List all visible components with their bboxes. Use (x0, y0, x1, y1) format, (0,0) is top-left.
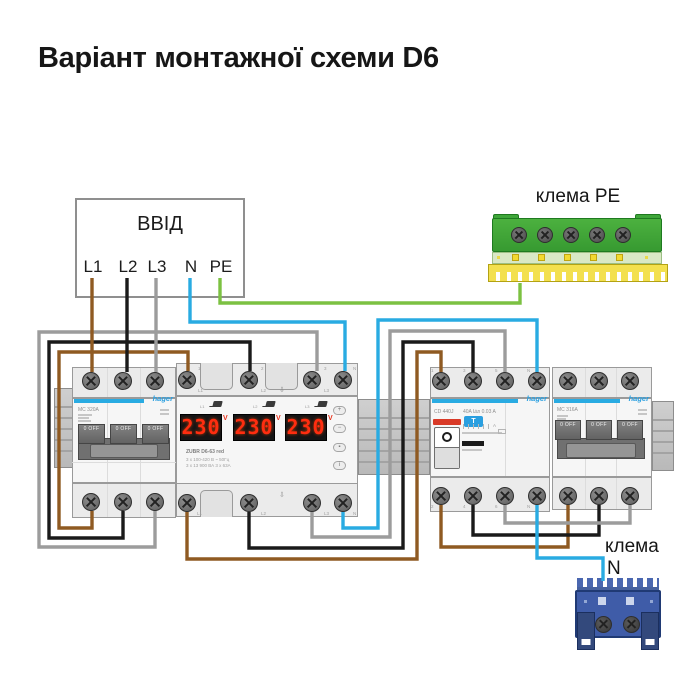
marking (462, 432, 502, 434)
screw-terminal (590, 372, 608, 390)
screw-terminal (623, 616, 640, 633)
terminal-phase: L2 (261, 388, 266, 393)
marking (473, 424, 474, 429)
pole-seam (616, 368, 617, 397)
screw-terminal (589, 227, 605, 243)
marking (468, 424, 469, 429)
relay-contact-icon (265, 401, 275, 407)
n-contact-dot (650, 600, 653, 603)
marking (488, 424, 489, 429)
pole-seam (585, 368, 586, 397)
terminal-phase: L1 (197, 511, 202, 516)
terminal-number: N (353, 366, 356, 371)
screw-terminal (303, 494, 321, 512)
marking (638, 413, 647, 415)
screw-terminal (303, 371, 321, 389)
screw-terminal (559, 372, 577, 390)
status-indicator (433, 419, 461, 425)
screw-terminal (178, 494, 196, 512)
switch-indicator-icon (442, 432, 452, 442)
screw-terminal (615, 227, 631, 243)
screw-terminal (146, 493, 164, 511)
rating-label: 40A I∆n 0.03 A (463, 409, 496, 415)
pole-seam (107, 368, 108, 397)
screw-terminal (240, 494, 258, 512)
terminal-phase: L1 (198, 388, 203, 393)
pole-seam (140, 368, 141, 397)
terminal-clip (200, 490, 233, 517)
pe-contact (512, 254, 519, 261)
screw-terminal (621, 487, 639, 505)
pe-contact (538, 254, 545, 261)
marking (638, 409, 647, 411)
screw-terminal (432, 372, 450, 390)
screw-terminal (528, 372, 546, 390)
terminal-number: 1 (198, 366, 201, 371)
voltage-relay-zubr: 1 2 3 N L1 L2 L3 ⇩ L1 L2 L3 230 V 230 V … (176, 363, 358, 517)
voltage-display-l3: 230 (285, 414, 327, 441)
voltage-unit: V (328, 415, 333, 422)
wiring-diagram-scene: Варіант монтажної схеми D6 ВВІД L1 L2 L3… (0, 0, 700, 700)
info-button: i (333, 461, 346, 470)
screw-terminal (432, 487, 450, 505)
marking (463, 424, 464, 429)
terminal-phase: L3 (324, 511, 329, 516)
marking (478, 424, 479, 429)
plus-button: + (333, 406, 346, 415)
pe-comb (488, 264, 668, 282)
terminal-number: 2 (261, 366, 264, 371)
terminal-label-pe: PE (210, 257, 233, 277)
terminal-number: N (527, 504, 530, 509)
screw-terminal (563, 227, 579, 243)
pole-seam (505, 399, 506, 476)
screw-terminal (240, 371, 258, 389)
n-terminal-label: клема (605, 536, 659, 558)
n-terminal-block (573, 576, 665, 654)
switch-handle (435, 447, 459, 468)
marking (483, 424, 484, 429)
terminal-clip (200, 363, 233, 390)
wire-n-rcd-to-terminal (537, 505, 603, 581)
spec-line: 3 x 100-420 В ~ 50Гц (186, 457, 229, 462)
n-mount-foot (641, 612, 659, 650)
terminal-number: 2 (431, 504, 434, 509)
breaker-toggle: 0 OFF (78, 424, 105, 444)
phase-label: L2 (253, 404, 257, 409)
screw-terminal (178, 371, 196, 389)
screw-terminal (595, 616, 612, 633)
terminal-phase: N (353, 511, 356, 516)
marking: A (493, 423, 496, 428)
pole-seam (140, 484, 141, 517)
terminal-number: 4 (463, 504, 466, 509)
marking (462, 441, 484, 446)
n-contact-dot (584, 600, 587, 603)
input-box-title: ВВІД (77, 213, 243, 236)
marking (78, 420, 91, 422)
terminal-number: N (527, 368, 530, 373)
din-rail-middle (358, 399, 430, 475)
screw-terminal (82, 493, 100, 511)
breaker-toggle: 0 OFF (110, 424, 137, 444)
voltage-unit: V (223, 415, 228, 422)
marking (78, 414, 92, 416)
minus-button: − (333, 424, 346, 433)
screw-terminal (334, 494, 352, 512)
down-arrow-icon: ⇩ (279, 386, 285, 394)
model-label: MC 316A (557, 407, 578, 413)
marking (462, 449, 482, 451)
face-seam (72, 462, 176, 463)
brand-logo: hager (527, 394, 547, 403)
menu-button: ▪ (333, 443, 346, 452)
terminal-label-n: N (185, 257, 197, 277)
down-arrow-icon: ⇩ (279, 491, 285, 499)
voltage-unit: V (276, 415, 281, 422)
breaker-toggle: 0 OFF (142, 424, 169, 444)
screw-terminal (334, 371, 352, 389)
phase-label: L1 (200, 404, 204, 409)
relay-contact-icon (212, 401, 222, 407)
voltage-display-l2: 230 (233, 414, 275, 441)
marking (160, 409, 169, 411)
n-contact (626, 597, 634, 605)
screw-terminal (82, 372, 100, 390)
model-label: ZUBR D6-63 red (186, 449, 224, 455)
input-box: ВВІД L1 L2 L3 N PE (75, 198, 245, 298)
breaker-toggle: 0 OFF (555, 420, 581, 440)
screw-terminal (537, 227, 553, 243)
n-contact (598, 597, 606, 605)
screw-terminal (496, 487, 514, 505)
screw-terminal (621, 372, 639, 390)
din-rail-right (652, 401, 674, 471)
screw-terminal (114, 493, 132, 511)
brand-stripe (432, 399, 518, 403)
terminal-number: 5 (495, 368, 498, 373)
terminal-label-l1: L1 (84, 257, 103, 277)
screw-terminal (496, 372, 514, 390)
wire-pe-input-to-terminal (220, 278, 520, 303)
pole-seam (585, 478, 586, 509)
breaker-left: hager MC 320A 0 OFF 0 OFF 0 OFF (72, 367, 176, 518)
relay-contact-icon (317, 401, 327, 407)
breaker-toggle: 0 OFF (586, 420, 612, 440)
pe-contact-dot (497, 256, 500, 259)
n-terminal-label-line2: N (607, 558, 621, 580)
brand-stripe (74, 399, 144, 403)
model-label: CD 440J (434, 409, 453, 415)
marking (160, 413, 169, 415)
pole-seam (107, 484, 108, 517)
brand-logo: hager (629, 394, 649, 403)
terminal-label-l3: L3 (148, 257, 167, 277)
screw-terminal (464, 487, 482, 505)
pole-seam (616, 478, 617, 509)
model-label: MC 320A (78, 407, 99, 413)
terminal-number: 1 (431, 368, 434, 373)
screw-terminal (114, 372, 132, 390)
screw-terminal (464, 372, 482, 390)
toggle-handle (566, 443, 636, 458)
terminal-phase: L2 (261, 511, 266, 516)
toggle-handle (90, 444, 158, 458)
screw-terminal (559, 487, 577, 505)
marking (498, 429, 506, 434)
screw-terminal (528, 487, 546, 505)
pe-terminal-label: клема PE (488, 186, 668, 208)
pe-terminal-block (488, 212, 668, 286)
pe-contact (590, 254, 597, 261)
voltage-display-l1: 230 (180, 414, 222, 441)
phase-label: L3 (305, 404, 309, 409)
pe-contact (616, 254, 623, 261)
terminal-number: 3 (463, 368, 466, 373)
din-rail-left (54, 388, 74, 468)
pe-contact (564, 254, 571, 261)
pe-contact-dot (645, 256, 648, 259)
terminal-number: 3 (324, 366, 327, 371)
terminal-phase: L3 (324, 388, 329, 393)
breaker-toggle: 0 OFF (617, 420, 643, 440)
terminal-number: 6 (495, 504, 498, 509)
brand-stripe (554, 399, 620, 403)
terminal-label-l2: L2 (119, 257, 138, 277)
n-mount-foot (577, 612, 595, 650)
breaker-right: hager MC 316A 0 OFF 0 OFF 0 OFF (552, 367, 652, 510)
rcd-device: 1 3 5 N hager CD 440J 40A I∆n 0.03 A T A… (430, 367, 550, 512)
rcd-switch (434, 427, 460, 469)
marking (78, 417, 89, 419)
screw-terminal (590, 487, 608, 505)
spec-line: 3 x 13 900 ВА 3 x 63А (186, 463, 231, 468)
page-title: Варіант монтажної схеми D6 (38, 42, 439, 75)
screw-terminal (146, 372, 164, 390)
marking (557, 415, 568, 417)
brand-logo: hager (153, 394, 173, 403)
screw-terminal (511, 227, 527, 243)
